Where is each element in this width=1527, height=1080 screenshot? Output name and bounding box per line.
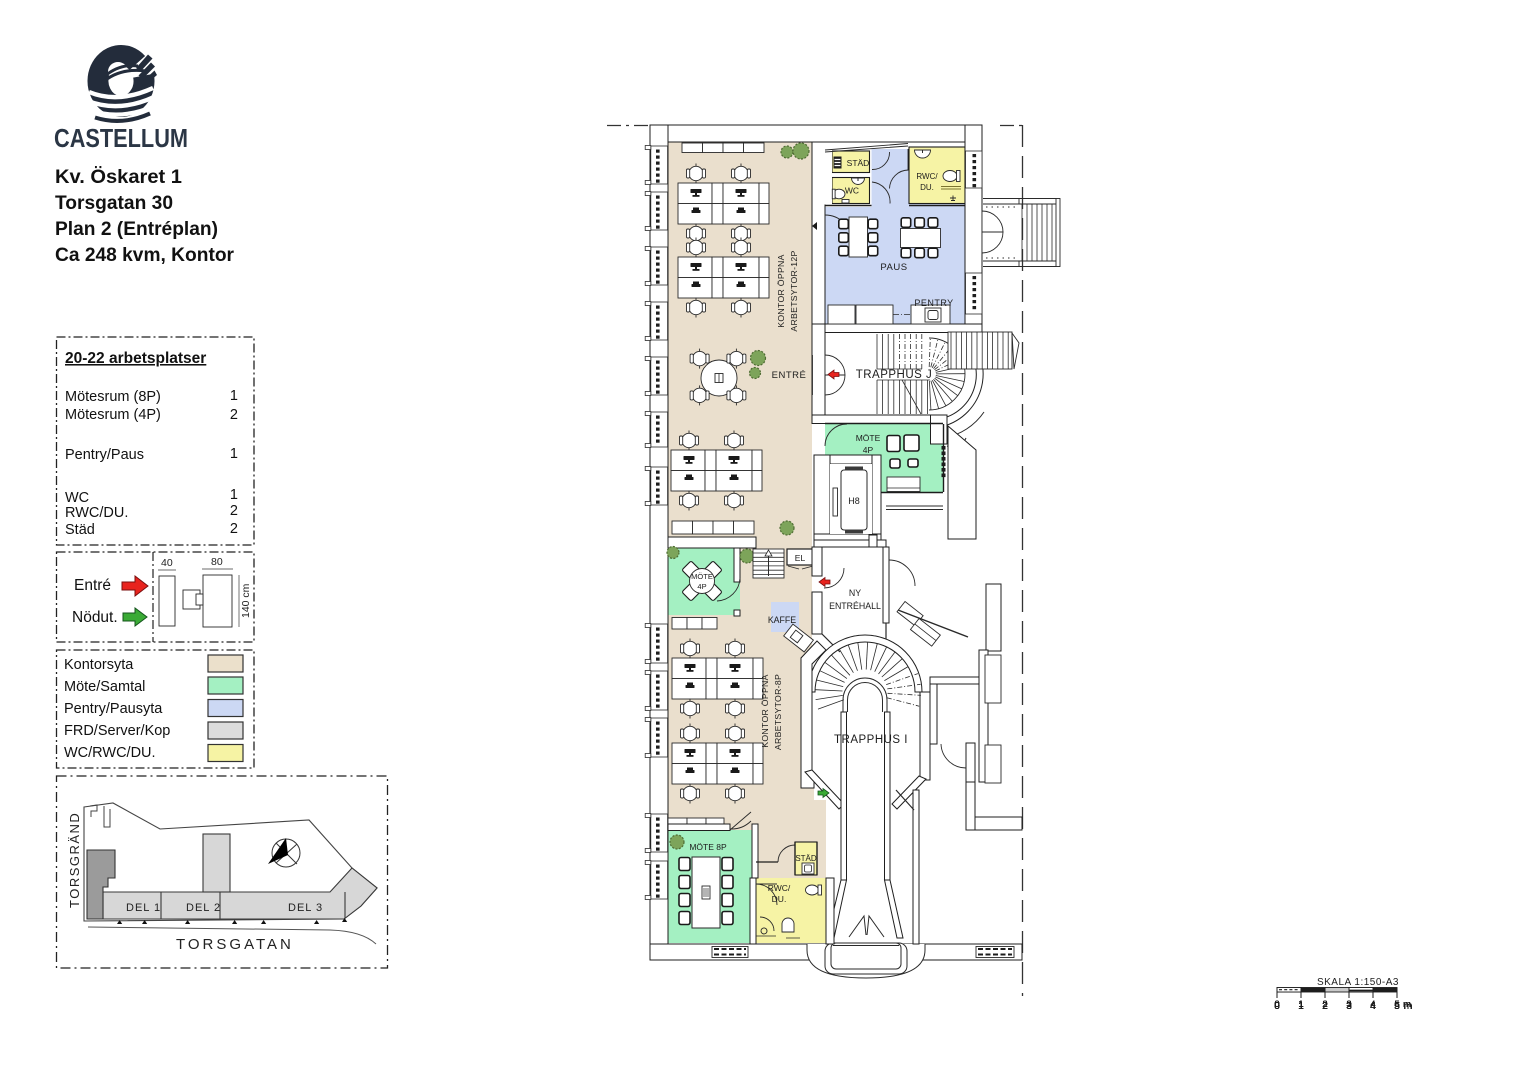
svg-text:Torsgatan 30: Torsgatan 30 — [55, 192, 173, 214]
svg-text:0: 0 — [1274, 1000, 1280, 1012]
svg-text:140 cm: 140 cm — [240, 583, 252, 618]
svg-text:1: 1 — [230, 388, 238, 404]
svg-text:NY: NY — [849, 588, 861, 598]
svg-text:CASTELLUM: CASTELLUM — [54, 123, 188, 153]
svg-text:RWC/: RWC/ — [916, 172, 938, 181]
svg-text:STÄD: STÄD — [847, 158, 870, 168]
svg-text:EL: EL — [795, 553, 806, 563]
svg-text:20-22 arbetsplatser: 20-22 arbetsplatser — [65, 350, 206, 367]
svg-text:Kontorsyta: Kontorsyta — [64, 657, 134, 673]
svg-text:5: 5 — [1394, 1000, 1400, 1012]
svg-text:TRAPPHUS J: TRAPPHUS J — [856, 369, 933, 381]
svg-text:m: m — [1404, 1000, 1413, 1012]
svg-text:1: 1 — [230, 487, 238, 503]
svg-text:TRAPPHUS I: TRAPPHUS I — [834, 734, 908, 746]
svg-text:ARBETSYTOR-12P: ARBETSYTOR-12P — [789, 250, 799, 331]
svg-text:Plan 2 (Entréplan): Plan 2 (Entréplan) — [55, 218, 218, 240]
svg-text:DEL 1: DEL 1 — [126, 902, 161, 914]
svg-text:Entré: Entré — [74, 577, 111, 594]
svg-text:DU.: DU. — [920, 183, 934, 192]
svg-text:Mötesrum (8P): Mötesrum (8P) — [65, 389, 161, 405]
svg-text:Pentry/Paus: Pentry/Paus — [65, 447, 144, 463]
svg-text:ENTRÉ: ENTRÉ — [772, 370, 807, 381]
svg-text:TORSGATAN: TORSGATAN — [176, 936, 294, 953]
svg-text:MÖTE: MÖTE — [691, 572, 713, 581]
svg-text:Nödut.: Nödut. — [72, 609, 118, 626]
svg-text:Pentry/Pausyta: Pentry/Pausyta — [64, 701, 163, 717]
svg-text:PAUS: PAUS — [880, 262, 907, 273]
svg-text:WC: WC — [845, 186, 859, 196]
svg-text:4P: 4P — [697, 582, 706, 591]
svg-text:80: 80 — [211, 556, 223, 568]
svg-text:Kv. Öskaret 1: Kv. Öskaret 1 — [55, 165, 182, 188]
svg-text:2: 2 — [230, 521, 238, 537]
svg-text:DEL 2: DEL 2 — [186, 902, 221, 914]
svg-text:4: 4 — [1370, 1000, 1376, 1012]
svg-text:3: 3 — [1346, 1000, 1352, 1012]
svg-text:ENTRÉHALL: ENTRÉHALL — [829, 601, 881, 611]
svg-text:FRD/Server/Kop: FRD/Server/Kop — [64, 723, 170, 739]
svg-text:KONTOR ÖPPNA: KONTOR ÖPPNA — [760, 674, 770, 747]
svg-text:ARBETSYTOR-8P: ARBETSYTOR-8P — [773, 674, 783, 750]
svg-text:Ca 248 kvm, Kontor: Ca 248 kvm, Kontor — [55, 244, 234, 266]
svg-text:KAFFE: KAFFE — [768, 615, 796, 625]
svg-text:DEL 3: DEL 3 — [288, 902, 323, 914]
svg-text:TORSGRÄND: TORSGRÄND — [67, 812, 82, 908]
svg-text:1: 1 — [1298, 1000, 1304, 1012]
svg-text:MÖTE 8P: MÖTE 8P — [689, 842, 727, 852]
svg-text:2: 2 — [230, 503, 238, 519]
svg-text:Mötesrum (4P): Mötesrum (4P) — [65, 407, 161, 423]
svg-text:2: 2 — [1322, 1000, 1328, 1012]
svg-text:DU.: DU. — [772, 894, 787, 904]
svg-text:PENTRY: PENTRY — [914, 298, 953, 308]
svg-text:STÄD: STÄD — [795, 854, 817, 863]
svg-text:Städ: Städ — [65, 522, 95, 538]
svg-text:4P: 4P — [863, 445, 874, 455]
svg-text:40: 40 — [161, 557, 173, 569]
svg-text:1: 1 — [230, 446, 238, 462]
svg-text:2: 2 — [230, 407, 238, 423]
svg-text:Möte/Samtal: Möte/Samtal — [64, 679, 145, 695]
svg-text:RWC/: RWC/ — [768, 883, 791, 893]
svg-text:RWC/DU.: RWC/DU. — [65, 505, 128, 521]
svg-text:KONTOR ÖPPNA: KONTOR ÖPPNA — [776, 254, 786, 327]
svg-text:WC: WC — [65, 490, 89, 506]
svg-text:SKALA 1:150-A3: SKALA 1:150-A3 — [1317, 977, 1399, 988]
svg-text:WC/RWC/DU.: WC/RWC/DU. — [64, 745, 156, 761]
svg-text:MÖTE: MÖTE — [856, 433, 881, 443]
svg-text:H8: H8 — [848, 496, 860, 506]
